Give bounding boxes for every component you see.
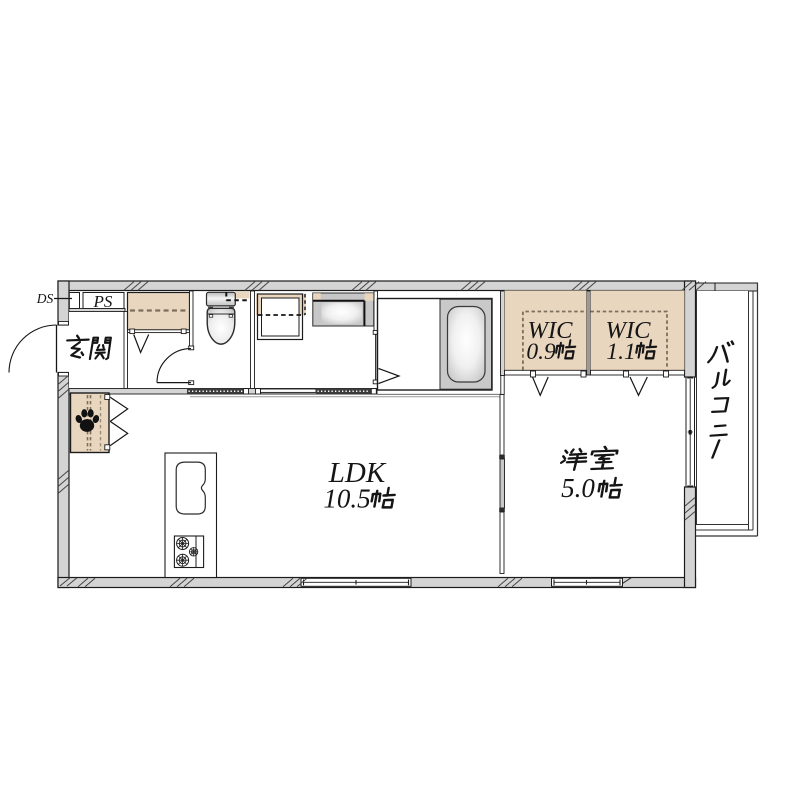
svg-text:10.5: 10.5 xyxy=(323,484,370,514)
svg-text:0.9: 0.9 xyxy=(526,339,556,365)
svg-text:DS: DS xyxy=(36,291,54,306)
svg-text:1.1: 1.1 xyxy=(606,339,635,365)
svg-text:5.0: 5.0 xyxy=(561,473,595,503)
